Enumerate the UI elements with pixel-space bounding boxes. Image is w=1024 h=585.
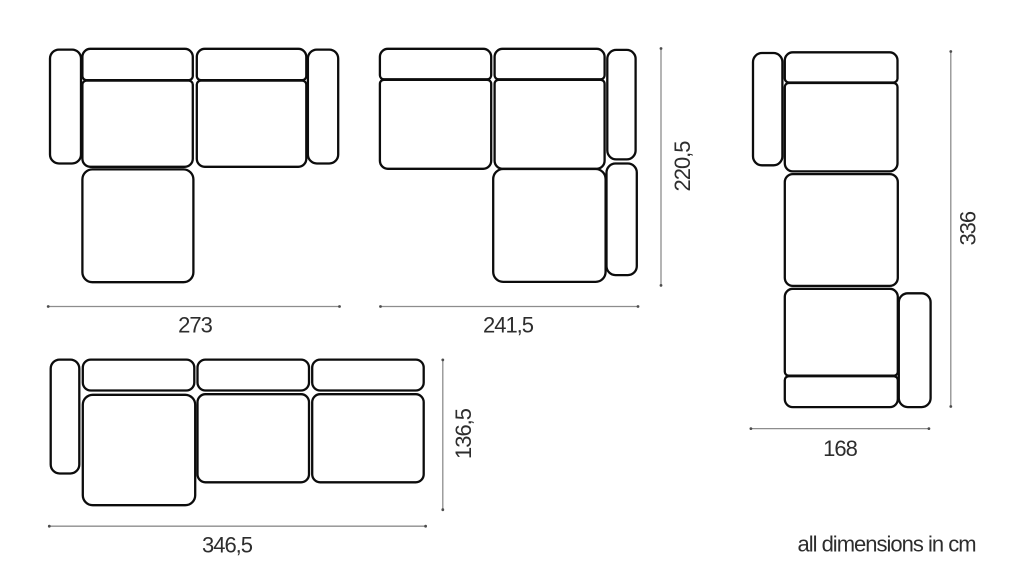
svg-text:136,5: 136,5 [451,408,476,459]
svg-text:168: 168 [823,436,857,461]
svg-text:220,5: 220,5 [670,141,695,192]
svg-text:241,5: 241,5 [483,313,534,338]
svg-text:273: 273 [178,313,212,338]
svg-text:336: 336 [956,211,981,245]
svg-text:all dimensions in cm: all dimensions in cm [797,532,975,557]
svg-text:346,5: 346,5 [202,533,253,558]
